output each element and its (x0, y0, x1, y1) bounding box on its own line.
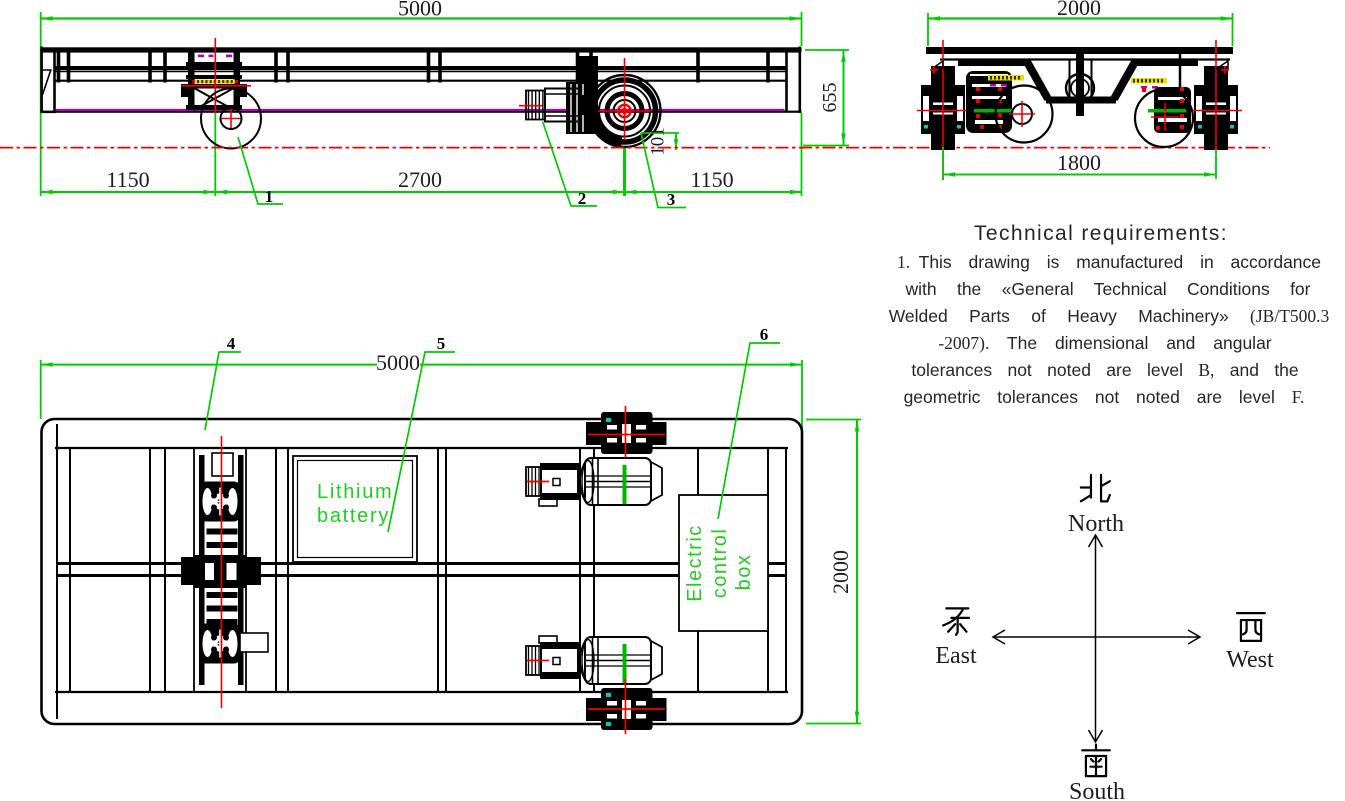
svg-text:Electric: Electric (684, 524, 706, 602)
svg-text:battery: battery (317, 505, 390, 527)
svg-text:West: West (1226, 647, 1274, 673)
svg-text:1: 1 (265, 187, 274, 206)
svg-text:geometric tolerances not noted: geometric tolerances not noted are level… (904, 387, 1305, 407)
svg-text:South: South (1069, 779, 1125, 801)
svg-text:5000: 5000 (376, 350, 420, 375)
svg-text:Lithium: Lithium (317, 481, 393, 503)
svg-text:1150: 1150 (690, 167, 733, 192)
svg-text:North: North (1068, 511, 1124, 537)
svg-text:box: box (733, 554, 755, 591)
svg-text:2700: 2700 (398, 167, 442, 192)
svg-text:4: 4 (227, 334, 236, 353)
svg-text:tolerances not noted are level: tolerances not noted are level B, and th… (911, 360, 1298, 380)
svg-text:6: 6 (760, 325, 769, 344)
svg-text:655: 655 (819, 83, 841, 113)
svg-text:with the «General Technical Co: with the «General Technical Conditions f… (904, 279, 1310, 299)
svg-text:1150: 1150 (106, 167, 149, 192)
svg-text:control: control (709, 528, 731, 599)
svg-text:5000: 5000 (398, 0, 442, 21)
svg-text:2000: 2000 (828, 550, 853, 594)
svg-text:-2007). The dimensional and an: -2007). The dimensional and angular (938, 333, 1271, 353)
svg-text:East: East (935, 643, 977, 669)
svg-text:Technical requirements:: Technical requirements: (974, 222, 1228, 245)
svg-text:101: 101 (648, 127, 669, 156)
svg-text:1800: 1800 (1057, 150, 1101, 175)
svg-text:1. This drawing is manufacture: 1. This drawing is manufactured in accor… (897, 252, 1321, 272)
svg-text:2000: 2000 (1057, 0, 1101, 20)
svg-text:2: 2 (578, 189, 587, 208)
svg-text:5: 5 (437, 334, 446, 353)
svg-text:3: 3 (667, 190, 676, 209)
svg-text:Welded Parts of Heavy Machiner: Welded Parts of Heavy Machinery» (JB/T50… (889, 306, 1330, 326)
